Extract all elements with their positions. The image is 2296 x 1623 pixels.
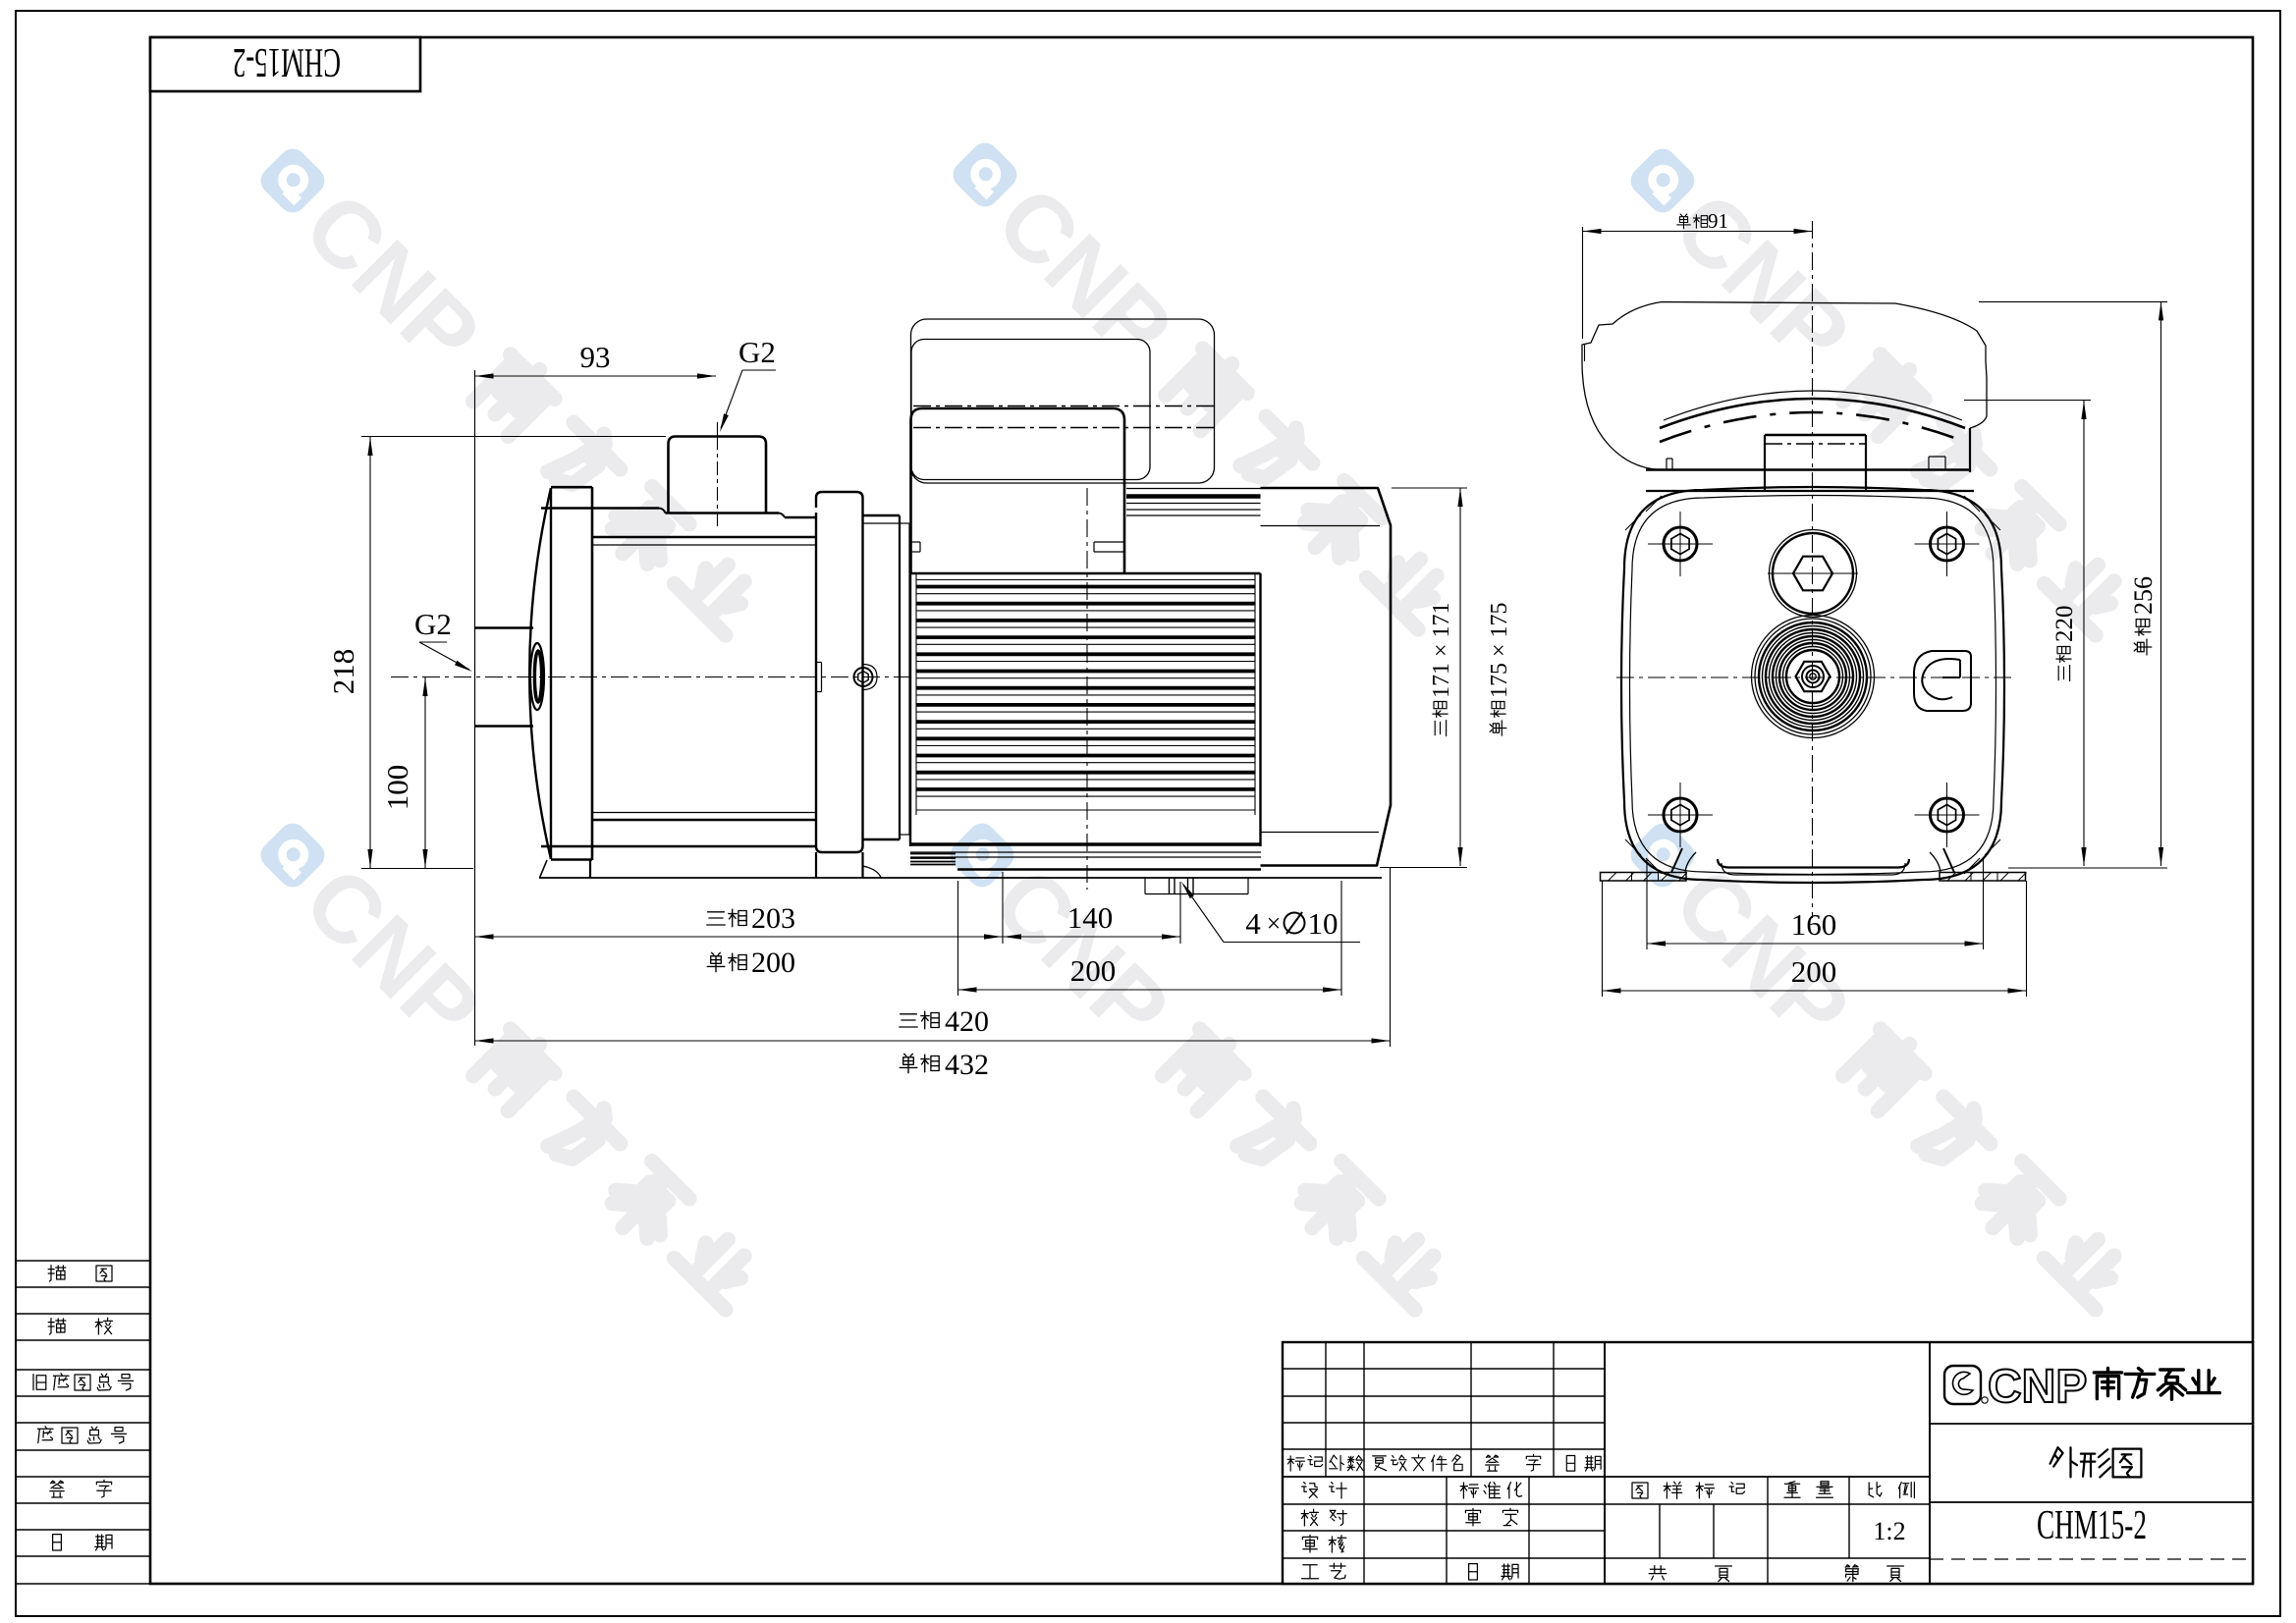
svg-text:171 × 171: 171 × 171 <box>1429 602 1454 698</box>
svg-text:256: 256 <box>2129 576 2158 615</box>
svg-text:CHM15-2: CHM15-2 <box>2037 1503 2147 1548</box>
svg-text:175 × 175: 175 × 175 <box>1487 602 1512 698</box>
svg-text:100: 100 <box>380 765 414 811</box>
svg-text:200: 200 <box>1791 954 1837 989</box>
svg-text:203: 203 <box>751 902 795 935</box>
svg-text:220: 220 <box>2051 606 2078 643</box>
svg-text:93: 93 <box>580 340 611 374</box>
svg-text:1:2: 1:2 <box>1873 1517 1905 1545</box>
svg-text:CNP: CNP <box>1988 1361 2087 1413</box>
svg-text:G2: G2 <box>738 335 776 369</box>
svg-text:200: 200 <box>1070 953 1117 988</box>
svg-text:140: 140 <box>1067 900 1114 935</box>
svg-text:91: 91 <box>1708 209 1728 233</box>
svg-text:218: 218 <box>326 649 360 695</box>
svg-text:160: 160 <box>1791 907 1837 942</box>
svg-text:×: × <box>1267 909 1282 938</box>
svg-text:4: 4 <box>1245 906 1261 941</box>
svg-text:CHM15-2: CHM15-2 <box>233 39 341 84</box>
svg-text:420: 420 <box>945 1005 989 1038</box>
svg-text:432: 432 <box>945 1049 989 1081</box>
svg-text:10: 10 <box>1308 906 1339 941</box>
svg-text:200: 200 <box>751 947 795 979</box>
svg-text:G2: G2 <box>414 607 452 641</box>
